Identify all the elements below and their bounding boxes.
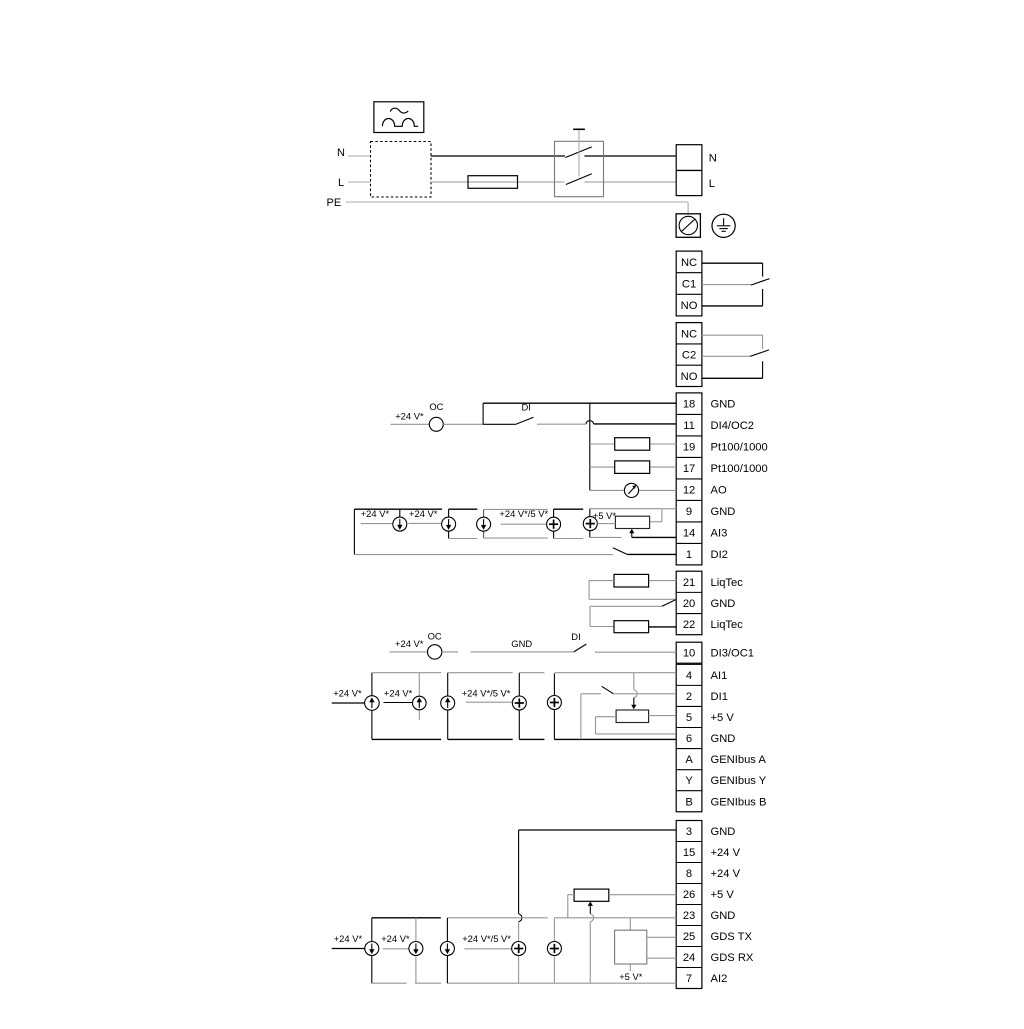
svg-text:PE: PE [327,197,342,209]
svg-text:GND: GND [711,399,736,411]
svg-text:+24 V*: +24 V* [361,508,390,519]
svg-text:25: 25 [683,931,695,943]
svg-text:2: 2 [686,691,692,703]
svg-text:+5 V: +5 V [711,889,735,901]
svg-text:+24 V*/5 V*: +24 V*/5 V* [462,933,511,944]
svg-text:18: 18 [683,399,695,411]
svg-text:DI: DI [571,631,580,642]
svg-text:+24 V*: +24 V* [409,508,438,519]
svg-text:4: 4 [686,670,692,682]
svg-text:26: 26 [683,889,695,901]
svg-text:+24 V*: +24 V* [334,933,363,944]
svg-text:OC: OC [429,401,443,412]
svg-text:DI3/OC1: DI3/OC1 [711,648,755,660]
svg-text:AI1: AI1 [711,670,728,682]
svg-text:GDS RX: GDS RX [711,952,754,964]
svg-text:+24 V*: +24 V* [395,410,424,421]
svg-text:11: 11 [683,420,695,432]
svg-text:LiqTec: LiqTec [711,619,744,631]
svg-text:Pt100/1000: Pt100/1000 [711,463,768,475]
svg-text:+24 V*: +24 V* [384,688,413,699]
svg-text:+24 V*/5 V*: +24 V*/5 V* [499,508,548,519]
svg-text:+5 V*: +5 V* [593,510,617,521]
svg-text:+5 V: +5 V [711,712,735,724]
svg-text:6: 6 [686,733,692,745]
svg-text:12: 12 [683,485,695,497]
svg-text:AO: AO [711,485,727,497]
svg-text:NC: NC [681,328,697,340]
svg-text:C2: C2 [682,350,696,362]
svg-text:N: N [337,147,345,159]
svg-text:L: L [709,178,715,190]
svg-text:8: 8 [686,868,692,880]
svg-text:24: 24 [683,952,695,964]
svg-text:3: 3 [686,826,692,838]
svg-text:GDS TX: GDS TX [711,931,753,943]
svg-text:15: 15 [683,847,695,859]
svg-text:9: 9 [686,506,692,518]
svg-text:AI3: AI3 [711,528,728,540]
svg-text:+5 V*: +5 V* [619,971,643,982]
svg-text:5: 5 [686,712,692,724]
svg-text:B: B [685,796,692,808]
svg-text:NO: NO [681,300,698,312]
svg-text:GND: GND [711,733,736,745]
svg-text:A: A [685,754,693,766]
svg-text:L: L [338,177,344,189]
svg-text:+24 V: +24 V [711,868,741,880]
svg-text:+24 V*: +24 V* [381,933,410,944]
svg-text:NC: NC [681,257,697,269]
svg-text:+24 V*: +24 V* [333,688,362,699]
svg-text:19: 19 [683,442,695,454]
svg-text:20: 20 [683,598,695,610]
svg-text:14: 14 [683,528,695,540]
svg-text:GENIbus A: GENIbus A [711,754,767,766]
svg-text:AI2: AI2 [711,973,728,985]
svg-text:GND: GND [511,638,532,649]
svg-text:21: 21 [683,577,695,589]
svg-text:DI2: DI2 [711,549,728,561]
svg-text:1: 1 [686,549,692,561]
svg-text:Pt100/1000: Pt100/1000 [711,442,768,454]
svg-text:22: 22 [683,619,695,631]
svg-text:GND: GND [711,910,736,922]
svg-text:Y: Y [685,775,693,787]
svg-text:DI1: DI1 [711,691,728,703]
svg-text:DI4/OC2: DI4/OC2 [711,420,755,432]
svg-text:GENIbus B: GENIbus B [711,796,767,808]
svg-text:N: N [709,152,717,164]
svg-text:OC: OC [428,630,442,641]
svg-text:+24 V*/5 V*: +24 V*/5 V* [462,688,511,699]
svg-text:GND: GND [711,598,736,610]
svg-text:GND: GND [711,826,736,838]
svg-text:GENIbus Y: GENIbus Y [711,775,767,787]
svg-text:NO: NO [681,371,698,383]
svg-text:GND: GND [711,506,736,518]
svg-text:10: 10 [683,648,695,660]
svg-text:23: 23 [683,910,695,922]
svg-text:7: 7 [686,973,692,985]
svg-text:17: 17 [683,463,695,475]
svg-text:+24 V: +24 V [711,847,741,859]
svg-text:+24 V*: +24 V* [395,638,424,649]
svg-text:LiqTec: LiqTec [711,577,744,589]
svg-text:C1: C1 [682,279,696,291]
